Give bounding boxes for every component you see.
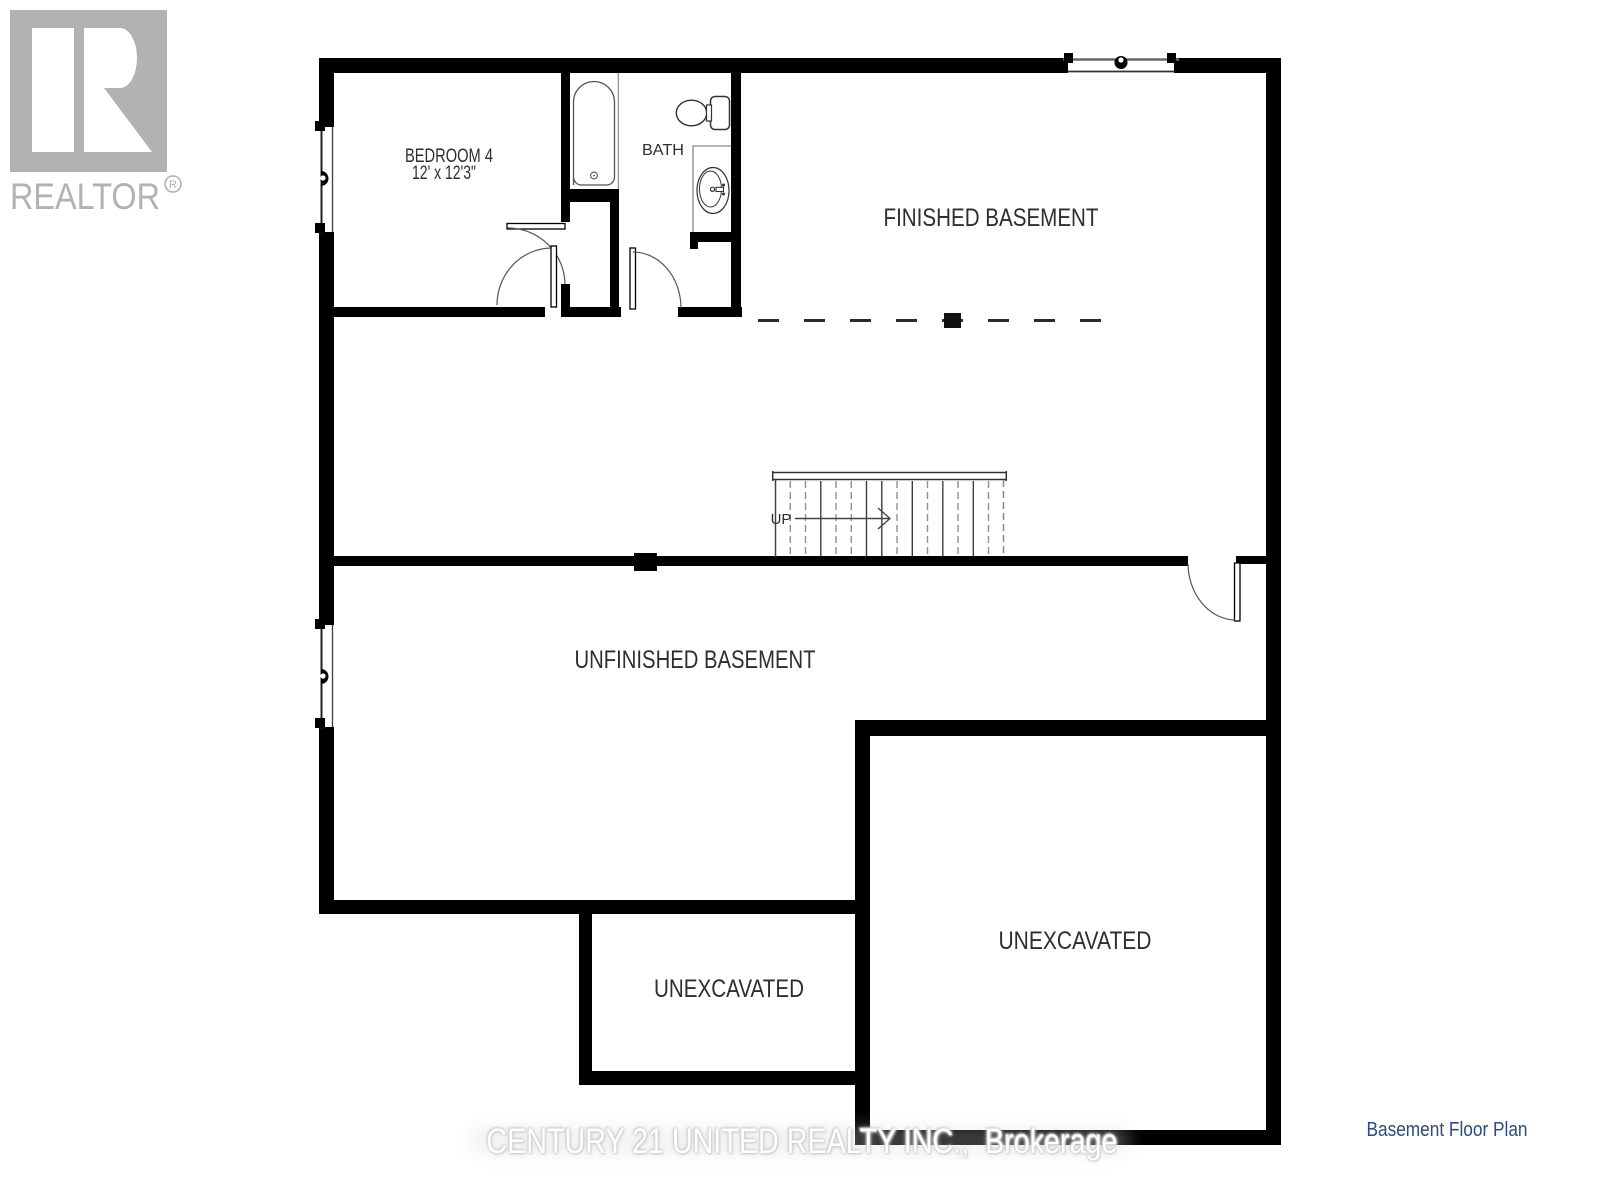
svg-text:12' x 12'3": 12' x 12'3" — [412, 163, 476, 184]
svg-text:UP: UP — [771, 511, 792, 528]
svg-text:UNEXCAVATED: UNEXCAVATED — [654, 975, 804, 1003]
svg-text:R: R — [169, 179, 177, 191]
svg-text:Basement Floor Plan: Basement Floor Plan — [1367, 1119, 1528, 1141]
svg-text:FINISHED BASEMENT: FINISHED BASEMENT — [884, 204, 1099, 232]
svg-text:UNFINISHED BASEMENT: UNFINISHED BASEMENT — [575, 646, 816, 674]
svg-text:BATH: BATH — [642, 142, 684, 159]
svg-text:REALTOR: REALTOR — [10, 176, 160, 217]
svg-text:UNEXCAVATED: UNEXCAVATED — [999, 927, 1152, 955]
